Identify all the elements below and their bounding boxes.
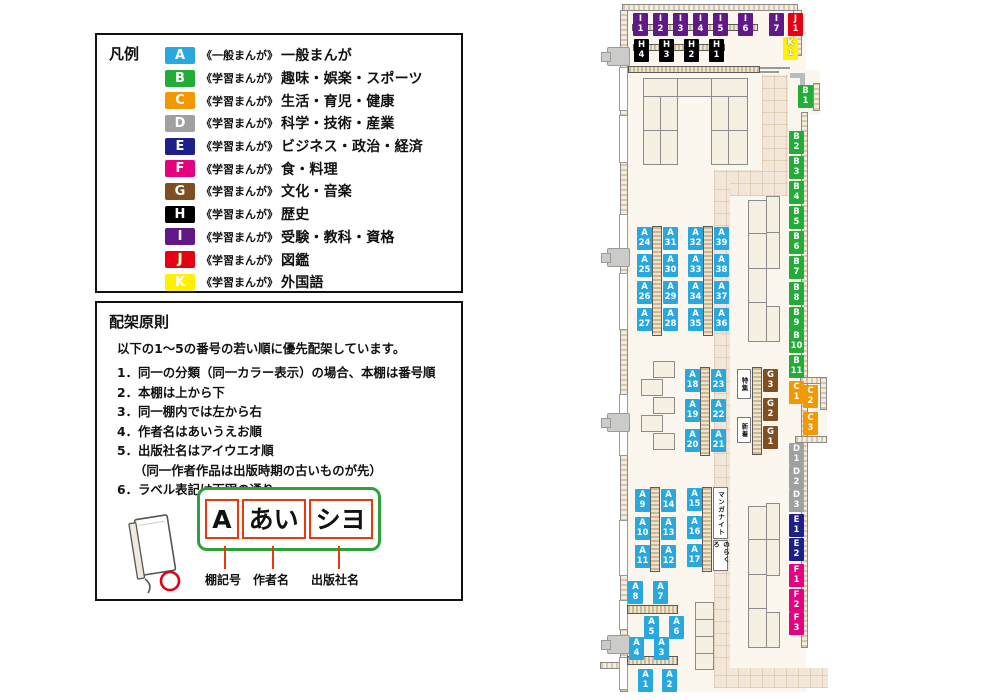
shelf-label: B 2 [789, 131, 804, 154]
table [643, 78, 678, 97]
shelf-label-number: 1 [783, 49, 798, 59]
shelf-label-number: 7 [769, 25, 784, 35]
shelf-label: D 3 [789, 489, 804, 512]
shelf-label-number: 3 [659, 51, 674, 61]
shelf-label-number: 28 [663, 320, 678, 330]
shelf-label-number: 27 [637, 320, 652, 330]
aisle [762, 75, 788, 185]
shelf-label: A 21 [711, 429, 726, 452]
area-box: のらくろ [713, 540, 728, 571]
shelf-label: G 2 [763, 398, 778, 421]
shelf-label: A 4 [629, 637, 644, 660]
shelf-label-number: 26 [637, 293, 652, 303]
shelf-label: B 1 [798, 85, 813, 108]
shelf-label-number: 18 [685, 381, 700, 391]
bookshelf [700, 367, 710, 456]
shelf-label: A 7 [653, 581, 668, 604]
bookshelf [652, 226, 662, 336]
shelf-label-number: 12 [661, 557, 676, 567]
shelf-label: B 8 [789, 282, 804, 305]
door [607, 413, 630, 432]
shelf-label-number: 11 [635, 557, 650, 567]
shelf-label-number: 2 [789, 601, 804, 611]
shelf-label-number: 21 [711, 441, 726, 451]
table [748, 539, 767, 575]
shelf-label-number: 13 [661, 529, 676, 539]
window [619, 520, 628, 576]
shelf-label: A 33 [688, 254, 703, 277]
shelf-label-number: 1 [638, 681, 653, 691]
shelf-label: A 2 [662, 669, 677, 692]
shelf-label-number: 24 [637, 239, 652, 249]
shelf-label-number: 30 [663, 266, 678, 276]
shelf-label-number: 3 [789, 168, 804, 178]
table [695, 602, 714, 620]
shelf-label-number: 1 [789, 576, 804, 586]
shelf-label-number: 9 [635, 501, 650, 511]
shelf-label: H 4 [634, 39, 649, 62]
shelf-label-number: 36 [714, 320, 729, 330]
shelf-label: C 1 [789, 381, 804, 404]
shelf-label-number: 3 [673, 25, 688, 35]
shelf-label: B 10 [789, 330, 804, 353]
aisle [714, 668, 828, 688]
shelf-label: A 27 [637, 308, 652, 331]
shelf-label: J 1 [788, 13, 803, 36]
shelf-label: A 25 [637, 254, 652, 277]
shelf-label: A 16 [687, 516, 702, 539]
table [748, 608, 767, 648]
shelf-label-number: 35 [688, 320, 703, 330]
table [641, 379, 663, 396]
shelf-label: A 14 [661, 489, 676, 512]
shelf-label: A 24 [637, 227, 652, 250]
table [643, 96, 661, 131]
table [711, 130, 729, 165]
shelf-label: A 28 [663, 308, 678, 331]
shelf-label: A 39 [714, 227, 729, 250]
table [728, 96, 748, 131]
shelf-label-number: 2 [789, 143, 804, 153]
shelf-label-number: 17 [687, 556, 702, 566]
shelf-label-number: 3 [763, 381, 778, 391]
shelf-label-number: 23 [711, 381, 726, 391]
shelf-label-number: 32 [688, 239, 703, 249]
shelf-label-number: 2 [789, 478, 804, 488]
shelf-label-number: 1 [798, 97, 813, 107]
area-box: マンガナイト [713, 487, 728, 539]
shelf-label-number: 1 [788, 25, 803, 35]
shelf-label: A 36 [714, 308, 729, 331]
shelf-label-number: 14 [661, 501, 676, 511]
shelf-label-number: 2 [662, 681, 677, 691]
wall-c-nook [820, 377, 827, 410]
table [695, 653, 714, 670]
shelf-label-number: 34 [688, 293, 703, 303]
shelf-label-number: 4 [789, 193, 804, 203]
shelf-label: A 12 [661, 545, 676, 568]
shelf-label: E 2 [789, 538, 804, 561]
shelf-label: I 4 [693, 13, 708, 36]
shelf-label: F 2 [789, 589, 804, 612]
shelf-label: B 9 [789, 307, 804, 330]
bookshelf [703, 226, 713, 336]
shelf-label-number: 11 [789, 367, 804, 377]
shelf-label: I 5 [713, 13, 728, 36]
bookshelf [752, 367, 762, 455]
shelf-label-number: 10 [789, 342, 804, 352]
shelf-label: A 19 [685, 399, 700, 422]
shelf-label-number: 25 [637, 266, 652, 276]
window [619, 115, 628, 163]
shelf-label-number: 16 [687, 528, 702, 538]
shelf-label: A 22 [711, 399, 726, 422]
table [748, 233, 767, 269]
shelf-label: D 1 [789, 443, 804, 466]
shelf-label: A 30 [663, 254, 678, 277]
window [619, 67, 628, 111]
table [748, 506, 767, 540]
shelf-label-number: 2 [803, 397, 818, 407]
shelf-label-number: 4 [693, 25, 708, 35]
shelf-label-number: 2 [684, 51, 699, 61]
shelf-label: A 38 [714, 254, 729, 277]
shelf-label-number: 7 [789, 268, 804, 278]
floor-map: I 1 I 2 I 3 I 4 I 5 I 6 I 7 J 1 [0, 0, 1000, 700]
shelf-label-number: 39 [714, 239, 729, 249]
shelf-label: I 6 [738, 13, 753, 36]
shelf-label-number: 9 [789, 319, 804, 329]
door [607, 47, 630, 66]
shelf-label-number: 2 [653, 25, 668, 35]
shelf-line [760, 67, 790, 69]
shelf-label-number: 3 [789, 501, 804, 511]
table [711, 96, 729, 131]
shelf-label: F 1 [789, 564, 804, 587]
table [695, 619, 714, 637]
wall-c-nook [795, 436, 827, 443]
shelf-label-number: 7 [653, 593, 668, 603]
shelf-label: D 2 [789, 466, 804, 489]
door [607, 248, 630, 267]
shelf-label-number: 31 [663, 239, 678, 249]
shelf-label: A 29 [663, 281, 678, 304]
area-box: 新着 [737, 417, 751, 443]
table [766, 232, 780, 269]
shelf-label: H 2 [684, 39, 699, 62]
wall-top [622, 4, 798, 11]
table [766, 196, 780, 233]
shelf-label-number: 2 [789, 550, 804, 560]
table [711, 78, 748, 97]
shelf-label: B 11 [789, 355, 804, 378]
area-box: 特集 [737, 369, 751, 399]
shelf-label: H 1 [709, 39, 724, 62]
table [660, 130, 678, 165]
shelf-label: I 7 [769, 13, 784, 36]
shelf-label: A 37 [714, 281, 729, 304]
table [653, 361, 675, 378]
shelf-label: K 1 [783, 37, 798, 60]
shelf-label-number: 5 [644, 628, 659, 638]
shelf-label: A 26 [637, 281, 652, 304]
bookshelf [650, 487, 660, 572]
shelf-label: A 10 [635, 517, 650, 540]
bookshelf [628, 66, 760, 73]
shelf-label-number: 4 [629, 649, 644, 659]
shelf-label-number: 1 [709, 51, 724, 61]
shelf-label-number: 1 [789, 393, 804, 403]
table [766, 539, 780, 576]
shelf-label: A 5 [644, 616, 659, 639]
table [766, 306, 780, 342]
table [653, 433, 675, 450]
table [748, 268, 767, 303]
shelf-label: E 1 [789, 514, 804, 537]
shelf-label-number: 37 [714, 293, 729, 303]
shelf-label-number: 1 [633, 25, 648, 35]
shelf-label: A 11 [635, 545, 650, 568]
shelf-label: B 6 [789, 231, 804, 254]
window [619, 214, 628, 252]
shelf-label: A 34 [688, 281, 703, 304]
shelf-label: A 18 [685, 369, 700, 392]
shelf-label-number: 1 [763, 438, 778, 448]
shelf-label: I 2 [653, 13, 668, 36]
shelf-label: B 5 [789, 206, 804, 229]
table [748, 574, 767, 609]
shelf-label-number: 8 [628, 593, 643, 603]
table [677, 78, 712, 97]
shelf-label: A 3 [654, 637, 669, 660]
shelf-label: I 1 [633, 13, 648, 36]
table [660, 96, 678, 131]
shelf-label-number: 6 [669, 628, 684, 638]
shelf-label: B 3 [789, 156, 804, 179]
shelf-label: C 2 [803, 385, 818, 408]
shelf-label-number: 33 [688, 266, 703, 276]
shelf-label: A 13 [661, 517, 676, 540]
shelf-label: A 17 [687, 544, 702, 567]
shelf-label: A 20 [685, 429, 700, 452]
table [653, 397, 675, 414]
shelf-label: A 23 [711, 369, 726, 392]
shelf-label-number: 8 [789, 294, 804, 304]
shelf-label-number: 1 [789, 455, 804, 465]
shelf-label-number: 20 [685, 441, 700, 451]
table [728, 130, 748, 165]
shelf-label: A 6 [669, 616, 684, 639]
shelf-label-number: 1 [789, 526, 804, 536]
shelf-label: A 31 [663, 227, 678, 250]
shelf-label-number: 4 [634, 51, 649, 61]
table [766, 612, 780, 648]
shelf-label: A 1 [638, 669, 653, 692]
shelf-label: H 3 [659, 39, 674, 62]
shelf-label: C 3 [803, 412, 818, 435]
shelf-label-number: 22 [711, 411, 726, 421]
shelf-label-number: 3 [803, 424, 818, 434]
shelf-label-number: 6 [789, 243, 804, 253]
shelf-label-number: 3 [789, 624, 804, 634]
shelf-label: B 4 [789, 181, 804, 204]
shelf-label: B 7 [789, 256, 804, 279]
wall-left [620, 10, 628, 692]
wall-b1 [813, 83, 820, 111]
shelf-label-number: 19 [685, 411, 700, 421]
shelf-label: I 3 [673, 13, 688, 36]
shelf-label: A 15 [687, 488, 702, 511]
table [643, 130, 661, 165]
shelf-label-number: 6 [738, 25, 753, 35]
table [766, 503, 780, 540]
shelf-label-number: 2 [763, 410, 778, 420]
table [695, 636, 714, 654]
table [641, 415, 663, 432]
shelf-label: A 32 [688, 227, 703, 250]
shelf-label-number: 15 [687, 500, 702, 510]
shelf-label-number: 29 [663, 293, 678, 303]
shelf-label-number: 3 [654, 649, 669, 659]
shelf-label-number: 38 [714, 266, 729, 276]
door [607, 635, 630, 654]
shelf-label-number: 5 [713, 25, 728, 35]
shelf-label: G 3 [763, 369, 778, 392]
bookshelf [627, 605, 678, 614]
shelf-label-number: 10 [635, 529, 650, 539]
shelf-label-number: 5 [789, 218, 804, 228]
shelf-label: F 3 [789, 612, 804, 635]
table [748, 302, 767, 342]
shelf-label: A 9 [635, 489, 650, 512]
shelf-label: A 35 [688, 308, 703, 331]
table [748, 200, 767, 234]
shelf-label: A 8 [628, 581, 643, 604]
shelf-label: G 1 [763, 426, 778, 449]
window [619, 273, 628, 330]
